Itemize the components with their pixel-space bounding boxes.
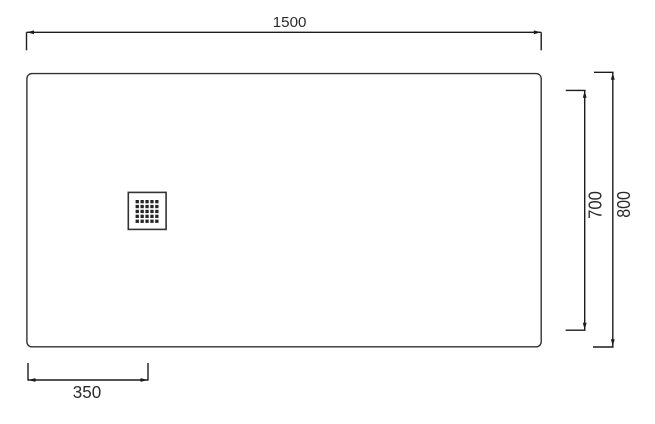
svg-text:1500: 1500 [273, 14, 307, 31]
svg-text:350: 350 [73, 382, 101, 402]
svg-text:700: 700 [586, 191, 606, 219]
svg-text:800: 800 [614, 191, 634, 218]
